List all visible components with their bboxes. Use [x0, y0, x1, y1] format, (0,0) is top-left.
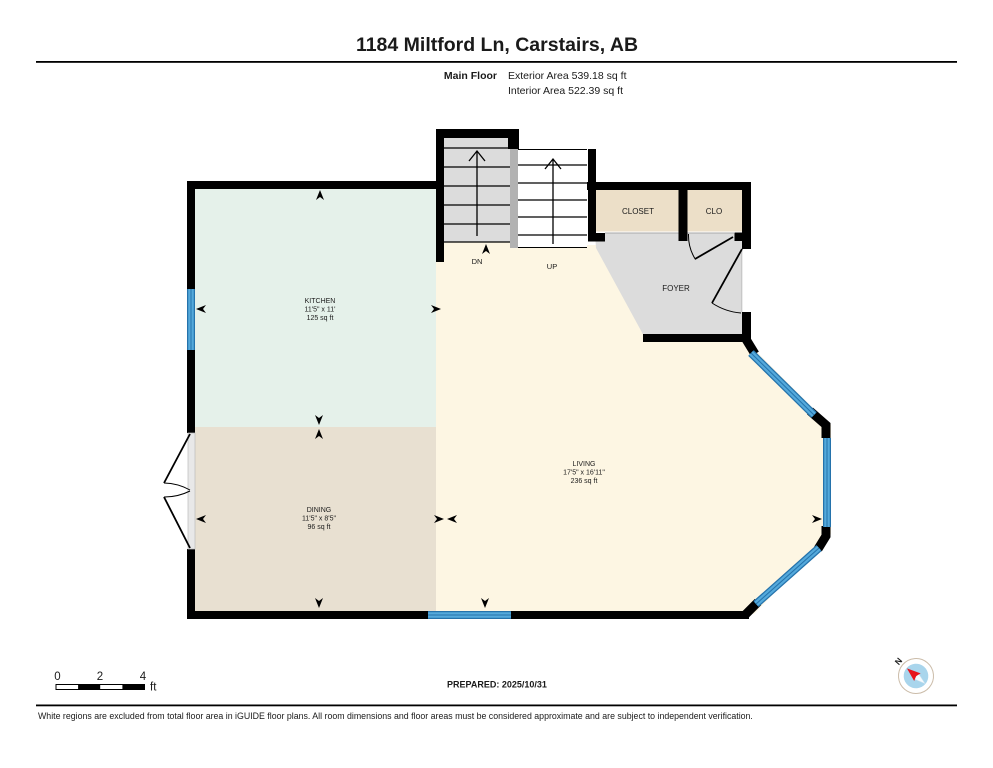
svg-text:Interior Area 522.39 sq ft: Interior Area 522.39 sq ft: [508, 85, 623, 97]
svg-text:DN: DN: [472, 257, 483, 266]
svg-text:White regions are excluded fro: White regions are excluded from total fl…: [38, 711, 753, 721]
svg-text:0: 0: [54, 671, 60, 683]
svg-text:125 sq ft: 125 sq ft: [307, 315, 334, 322]
svg-text:2: 2: [97, 671, 103, 683]
svg-text:4: 4: [140, 671, 147, 683]
svg-text:LIVING: LIVING: [573, 461, 596, 468]
svg-text:Exterior Area 539.18 sq ft: Exterior Area 539.18 sq ft: [508, 70, 627, 82]
svg-text:KITCHEN: KITCHEN: [305, 298, 336, 305]
svg-text:FOYER: FOYER: [662, 284, 690, 293]
svg-text:11'5" x 8'5": 11'5" x 8'5": [302, 516, 336, 523]
svg-text:96 sq ft: 96 sq ft: [308, 524, 331, 531]
svg-text:1184 Miltford Ln, Carstairs, A: 1184 Miltford Ln, Carstairs, AB: [356, 34, 638, 56]
svg-text:PREPARED: 2025/10/31: PREPARED: 2025/10/31: [447, 680, 547, 690]
svg-text:ft: ft: [150, 682, 157, 694]
svg-text:DINING: DINING: [307, 507, 332, 514]
svg-text:236 sq ft: 236 sq ft: [571, 478, 598, 485]
svg-text:17'5" x 16'11": 17'5" x 16'11": [563, 470, 605, 477]
svg-text:CLO: CLO: [706, 207, 722, 216]
svg-text:11'5" x 11': 11'5" x 11': [305, 307, 336, 314]
svg-text:CLOSET: CLOSET: [622, 207, 654, 216]
svg-text:UP: UP: [547, 262, 557, 271]
svg-text:Main Floor: Main Floor: [444, 70, 497, 82]
